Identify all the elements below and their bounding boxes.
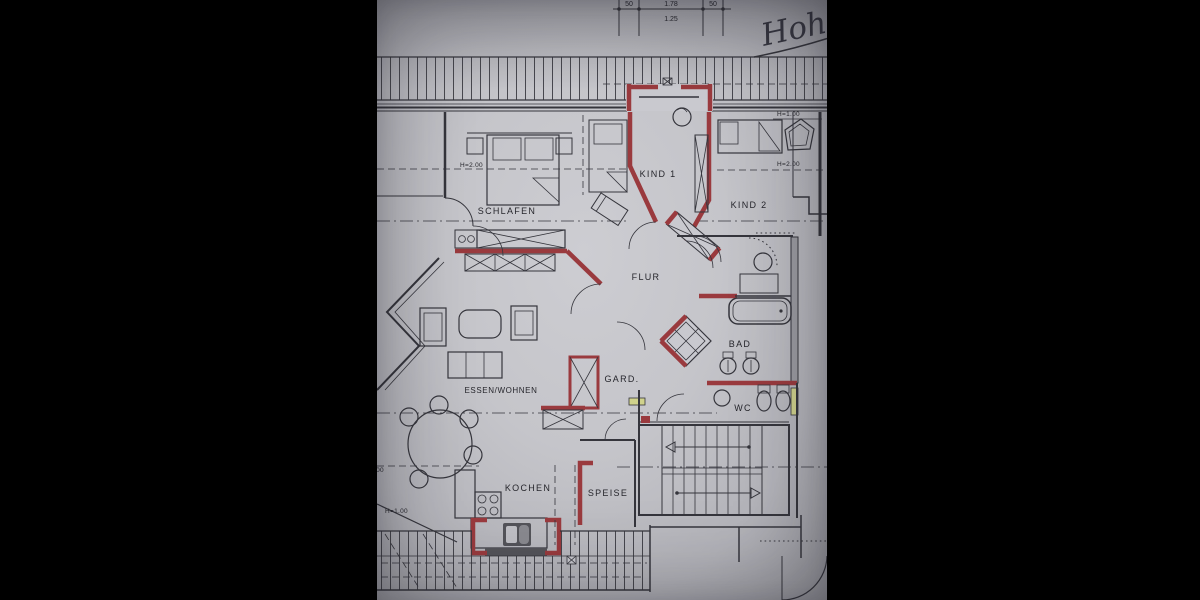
floor-plan-photo: 50 1.78 50 1.25 Hoh [377,0,827,600]
label-flur: FLUR [632,272,661,282]
sideboard-cabinets [455,230,601,284]
door-highlight-gard [629,398,645,405]
dim-50-left: 50 [625,1,633,8]
label-kochen: KOCHEN [505,483,551,493]
room-kochen: KOCHEN [455,465,575,556]
black-bar-left [0,0,377,600]
room-essen-wohnen: ESSEN/WOHNEN H=2.00 H=1.00 [377,258,538,515]
label-speise: SPEISE [588,488,628,498]
section-lines [377,169,827,542]
label-gard: GARD. [604,374,639,384]
label-wc: WC [734,403,752,413]
stairwell [639,383,797,518]
dimension-chain: 50 1.78 50 1.25 [613,0,731,36]
screenshot: 50 1.78 50 1.25 Hoh [0,0,1200,600]
label-schlafen: SCHLAFEN [478,206,536,216]
bed-schlafen [487,135,559,205]
room-bad: BAD [661,233,798,383]
toilet-1 [757,391,771,411]
label-kind2: KIND 2 [731,200,768,210]
handwritten-note: Hoh [754,5,827,57]
hmark-wohnen-upper: H=2.00 [377,467,384,474]
label-kind1: KIND 1 [640,169,677,179]
handwriting-text: Hoh [757,5,827,54]
sofa [448,352,502,378]
black-bar-right [827,0,1200,600]
dim-50-right: 50 [709,1,717,8]
dim-125: 1.25 [664,16,678,23]
room-schlafen: SCHLAFEN H=2.00 [445,112,572,226]
kitchen-sink [503,523,531,546]
hmark-kind2-lower: H=2.00 [777,161,800,168]
room-speise: SPEISE [580,419,635,527]
room-gard: GARD. [541,357,645,429]
washbasin-bad [754,253,772,271]
toilet-2 [776,391,790,411]
kitchen-window-sill [485,548,547,556]
hmark-wohnen-lower: H=1.00 [385,508,408,515]
label-bad: BAD [729,339,751,349]
label-essen-wohnen: ESSEN/WOHNEN [465,386,538,395]
entry-door-arc [782,556,827,600]
hmark-kind2-upper: H=1.00 [777,111,800,118]
shower [661,316,711,366]
hmark-schlafen: H=2.00 [460,162,483,169]
bottom-right-walls [650,515,827,600]
wc-basin [714,390,730,406]
bed-kind2 [718,120,782,153]
room-wc: WC [707,383,798,415]
room-kind2: KIND 2 H=1.00 H=2.00 [718,111,827,236]
coffee-table [459,310,501,338]
floor-plan-drawing: 50 1.78 50 1.25 Hoh [377,0,827,600]
dim-178: 1.78 [664,1,678,8]
roof-band-top [377,57,827,111]
bed-kind1 [589,120,627,192]
